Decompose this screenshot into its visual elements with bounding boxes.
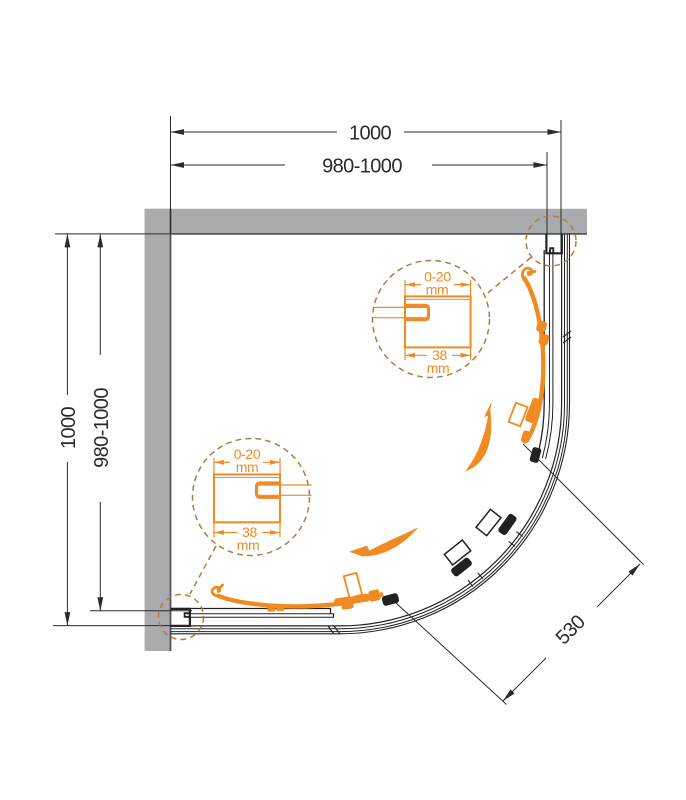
svg-text:980-1000: 980-1000 <box>91 388 113 468</box>
svg-text:mm: mm <box>237 537 260 553</box>
svg-text:mm: mm <box>426 282 449 298</box>
svg-text:1000: 1000 <box>349 123 392 145</box>
svg-text:980-1000: 980-1000 <box>322 156 402 178</box>
svg-text:1000: 1000 <box>58 406 80 449</box>
svg-text:mm: mm <box>236 459 259 475</box>
svg-text:mm: mm <box>427 360 450 376</box>
